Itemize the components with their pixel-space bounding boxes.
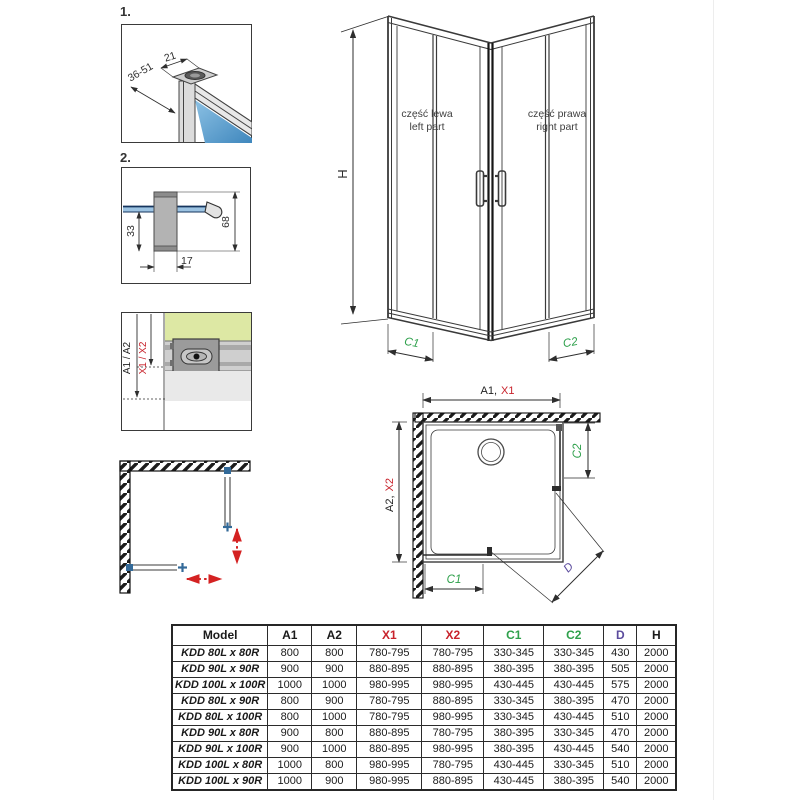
value-cell: 2000	[637, 646, 677, 662]
plan-handle-bottom	[487, 547, 492, 556]
dimensions-table: ModelA1A2X1X2C1C2DH KDD 80L x 80R8008007…	[171, 624, 677, 791]
table-row: KDD 100L x 90R1000900980-995880-895430-4…	[172, 774, 676, 791]
column-header-c1: C1	[484, 625, 544, 646]
value-cell: 330-345	[484, 646, 544, 662]
value-cell: 880-895	[422, 694, 484, 710]
x1-plan-label: X1	[501, 385, 514, 397]
value-cell: 800	[312, 726, 357, 742]
column-header-x2: X2	[422, 625, 484, 646]
value-cell: 880-895	[357, 726, 422, 742]
left-part-label-en: left part	[409, 121, 444, 133]
value-cell: 900	[268, 726, 312, 742]
value-cell: 780-795	[422, 758, 484, 774]
value-cell: 380-395	[484, 742, 544, 758]
table-row: KDD 80L x 90R800900780-795880-895330-345…	[172, 694, 676, 710]
table-row: KDD 80L x 80R800800780-795780-795330-345…	[172, 646, 676, 662]
c2-plan-label: C2	[572, 443, 584, 458]
column-header-d: D	[604, 625, 637, 646]
value-cell: 2000	[637, 774, 677, 791]
enclosure-frame	[388, 16, 594, 341]
value-cell: 430-445	[484, 678, 544, 694]
c1-front-label: C1	[403, 336, 420, 351]
d-plan-label: D	[562, 561, 576, 575]
value-cell: 2000	[637, 742, 677, 758]
value-cell: 1000	[312, 710, 357, 726]
a2-x2-plan-label: A2,X2	[384, 478, 396, 512]
value-cell: 540	[604, 742, 637, 758]
detail2-number: 2.	[120, 150, 131, 165]
value-cell: 900	[268, 742, 312, 758]
x1-x2-label: X1 / X2	[138, 341, 149, 374]
table-row: KDD 90L x 90R900900880-895880-895380-395…	[172, 662, 676, 678]
value-cell: 505	[604, 662, 637, 678]
value-cell: 470	[604, 726, 637, 742]
value-cell: 900	[268, 662, 312, 678]
value-cell: 380-395	[544, 662, 604, 678]
tray-edge-strip	[165, 371, 251, 401]
x2-plan-label: X2	[384, 478, 396, 491]
value-cell: 900	[312, 694, 357, 710]
right-part-label-pl: część prawa	[528, 108, 587, 120]
model-cell: KDD 90L x 90R	[172, 662, 268, 678]
value-cell: 380-395	[484, 662, 544, 678]
value-cell: 1000	[268, 678, 312, 694]
table-header-row: ModelA1A2X1X2C1C2DH	[172, 625, 676, 646]
value-cell: 430	[604, 646, 637, 662]
column-header-a1: A1	[268, 625, 312, 646]
detail4-opening-sketch	[116, 453, 258, 613]
value-cell: 800	[268, 710, 312, 726]
table-body: KDD 80L x 80R800800780-795780-795330-345…	[172, 646, 676, 791]
value-cell: 540	[604, 774, 637, 791]
value-cell: 330-345	[544, 726, 604, 742]
left-part-label-pl: część lewa	[401, 108, 453, 120]
value-cell: 1000	[268, 758, 312, 774]
shower-tray	[423, 422, 563, 562]
a1-plan-label: A1,	[480, 385, 497, 397]
model-cell: KDD 100L x 90R	[172, 774, 268, 791]
value-cell: 2000	[637, 758, 677, 774]
model-cell: KDD 90L x 100R	[172, 742, 268, 758]
a2-plan-label: A2,	[384, 495, 396, 512]
value-cell: 2000	[637, 726, 677, 742]
sliding-doors	[133, 477, 230, 570]
value-cell: 575	[604, 678, 637, 694]
opening-direction-arrows	[187, 529, 237, 579]
value-cell: 470	[604, 694, 637, 710]
column-header-x1: X1	[357, 625, 422, 646]
table-row: KDD 90L x 100R9001000880-895980-995380-3…	[172, 742, 676, 758]
value-cell: 430-445	[484, 774, 544, 791]
value-cell: 1000	[312, 742, 357, 758]
value-cell: 800	[312, 758, 357, 774]
value-cell: 880-895	[357, 662, 422, 678]
value-cell: 430-445	[544, 742, 604, 758]
model-cell: KDD 100L x 100R	[172, 678, 268, 694]
value-cell: 880-895	[422, 662, 484, 678]
value-cell: 2000	[637, 694, 677, 710]
value-cell: 2000	[637, 678, 677, 694]
value-cell: 430-445	[484, 758, 544, 774]
dim-17-label: 17	[181, 255, 193, 267]
value-cell: 510	[604, 758, 637, 774]
model-cell: KDD 80L x 90R	[172, 694, 268, 710]
value-cell: 430-445	[544, 710, 604, 726]
dim-33-label: 33	[125, 225, 137, 237]
handle-profile	[154, 192, 177, 251]
c1-plan-label: C1	[447, 574, 462, 586]
value-cell: 900	[312, 774, 357, 791]
rail-profile	[165, 339, 251, 373]
value-cell: 330-345	[484, 710, 544, 726]
dim-68-label: 68	[220, 216, 232, 228]
value-cell: 980-995	[422, 742, 484, 758]
value-cell: 900	[312, 662, 357, 678]
detail3-wall-profile: A1 / A2 X1 / X2	[121, 312, 252, 431]
table-header: ModelA1A2X1X2C1C2DH	[172, 625, 676, 646]
table-row: KDD 80L x 100R8001000780-795980-995330-3…	[172, 710, 676, 726]
column-header-model: Model	[172, 625, 268, 646]
value-cell: 1000	[268, 774, 312, 791]
value-cell: 1000	[312, 678, 357, 694]
right-part-label-en: right part	[536, 121, 578, 133]
value-cell: 780-795	[422, 646, 484, 662]
model-cell: KDD 90L x 80R	[172, 726, 268, 742]
value-cell: 780-795	[357, 646, 422, 662]
spec-sheet: 1.	[0, 0, 800, 800]
value-cell: 800	[268, 646, 312, 662]
table-row: KDD 90L x 80R900800880-895780-795380-395…	[172, 726, 676, 742]
door-handles	[477, 171, 506, 206]
detail1-number: 1.	[120, 4, 131, 19]
value-cell: 980-995	[357, 678, 422, 694]
corner-connector	[556, 424, 562, 431]
value-cell: 980-995	[422, 678, 484, 694]
value-cell: 330-345	[544, 646, 604, 662]
page-divider-line	[713, 0, 714, 800]
column-header-c2: C2	[544, 625, 604, 646]
column-header-h: H	[637, 625, 677, 646]
value-cell: 800	[312, 646, 357, 662]
c2-front-label: C2	[562, 336, 579, 351]
front-view: H	[330, 2, 632, 370]
value-cell: 780-795	[357, 694, 422, 710]
value-cell: 330-345	[544, 758, 604, 774]
value-cell: 980-995	[357, 774, 422, 791]
detail2-handle-section: 33 68 17	[121, 167, 251, 284]
model-cell: KDD 80L x 80R	[172, 646, 268, 662]
model-cell: KDD 80L x 100R	[172, 710, 268, 726]
value-cell: 780-795	[422, 726, 484, 742]
value-cell: 2000	[637, 662, 677, 678]
value-cell: 380-395	[544, 694, 604, 710]
value-cell: 430-445	[544, 678, 604, 694]
value-cell: 880-895	[422, 774, 484, 791]
value-cell: 510	[604, 710, 637, 726]
value-cell: 880-895	[357, 742, 422, 758]
value-cell: 980-995	[422, 710, 484, 726]
plan-handle-right	[552, 486, 561, 491]
value-cell: 800	[268, 694, 312, 710]
wall-strip	[165, 313, 251, 341]
column-header-a2: A2	[312, 625, 357, 646]
model-cell: KDD 100L x 80R	[172, 758, 268, 774]
value-cell: 980-995	[357, 758, 422, 774]
value-cell: 2000	[637, 710, 677, 726]
plan-view: A1, X1 A2,X2	[383, 378, 633, 624]
value-cell: 780-795	[357, 710, 422, 726]
value-cell: 380-395	[484, 726, 544, 742]
value-cell: 380-395	[544, 774, 604, 791]
value-cell: 330-345	[484, 694, 544, 710]
table-row: KDD 100L x 100R10001000980-995980-995430…	[172, 678, 676, 694]
a1-a2-label: A1 / A2	[122, 341, 133, 374]
table-row: KDD 100L x 80R1000800980-995780-795430-4…	[172, 758, 676, 774]
h-label: H	[335, 169, 350, 178]
detail1-profile-drawing: 21 36-51	[121, 24, 252, 143]
door-handles-markers	[126, 467, 232, 572]
